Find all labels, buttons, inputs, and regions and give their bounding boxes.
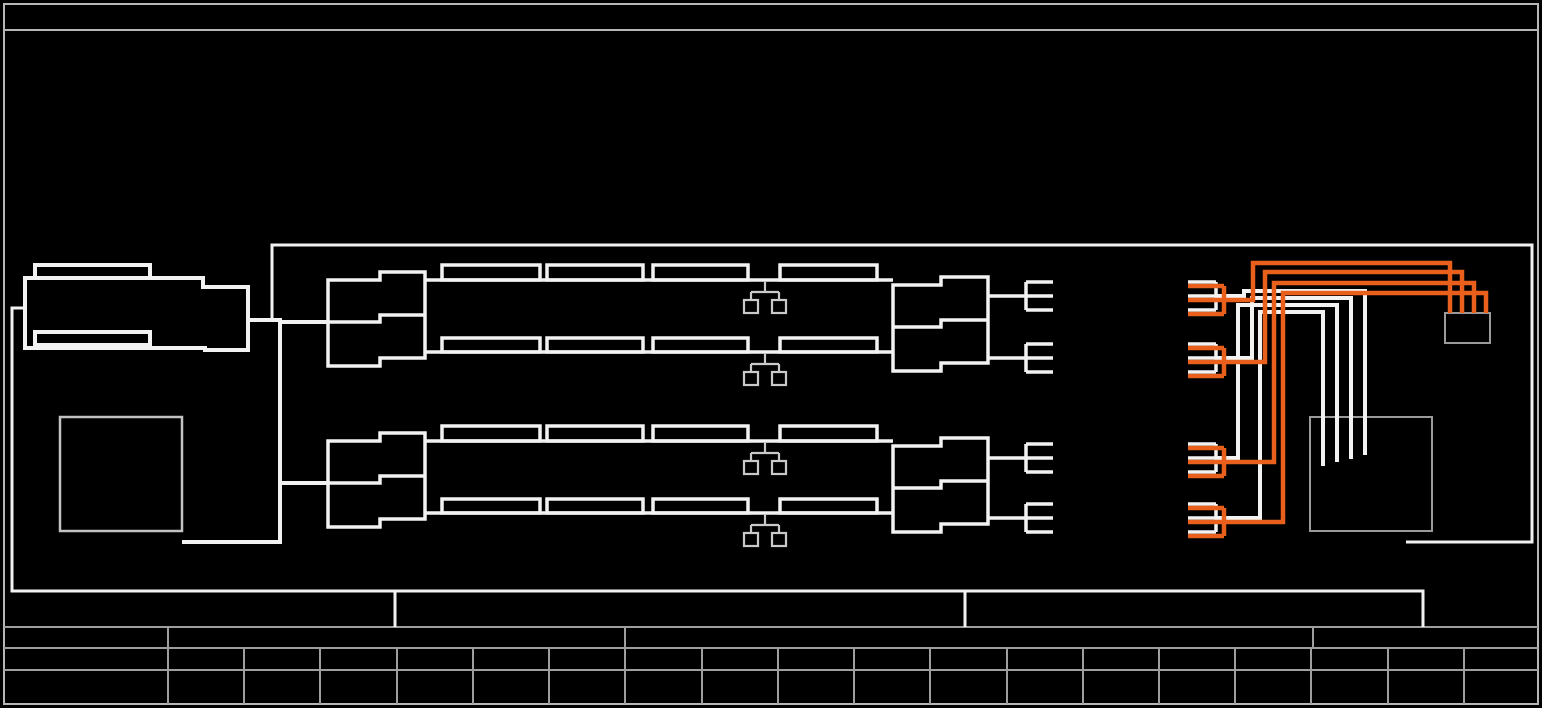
harness-rails xyxy=(425,280,893,352)
left-connector-block xyxy=(328,433,425,527)
fork-connectors xyxy=(988,282,1053,372)
branch-symbol xyxy=(751,514,779,533)
small-junction-box xyxy=(1445,313,1490,343)
sheet-frame xyxy=(4,4,1538,704)
fork-connectors xyxy=(988,444,1053,532)
terminal-square xyxy=(772,300,786,313)
enclosure-bottom-outline xyxy=(12,308,1423,627)
left-component-box xyxy=(60,417,182,531)
sheet-border xyxy=(4,4,1538,704)
white-wire xyxy=(1216,305,1337,462)
right-connector-block xyxy=(893,438,988,532)
branch-symbol xyxy=(751,442,779,461)
harness-lower xyxy=(328,426,1053,532)
terminal-square xyxy=(772,372,786,385)
terminal-square xyxy=(772,461,786,474)
left-connector-block xyxy=(328,272,425,366)
harness-upper xyxy=(328,265,1053,372)
rail-modules xyxy=(442,426,877,513)
terminal-square xyxy=(744,372,758,385)
right-connector-groups-white xyxy=(1188,282,1216,532)
large-junction-box xyxy=(1310,417,1432,531)
terminal-square xyxy=(744,533,758,546)
table-top-row-dividers xyxy=(168,627,1313,648)
terminal-square xyxy=(772,533,786,546)
schematic-sheet xyxy=(0,0,1542,708)
battery-connector xyxy=(25,265,328,542)
rail-modules xyxy=(442,265,877,352)
title-block-table xyxy=(4,627,1538,704)
table-row-lines xyxy=(4,627,1538,670)
right-connector-block xyxy=(893,277,988,371)
harness-rails xyxy=(425,441,893,513)
feed-bus xyxy=(182,320,328,542)
white-wire xyxy=(1216,312,1323,518)
branch-symbol xyxy=(751,281,779,300)
battery-body xyxy=(25,278,248,350)
battery-bottom-tab xyxy=(35,332,150,345)
white-wire-routes xyxy=(1216,291,1365,518)
terminal-square xyxy=(744,300,758,313)
schematic-canvas xyxy=(0,0,1542,708)
table-grid-dividers xyxy=(168,648,1464,704)
left-component xyxy=(60,417,182,531)
branch-symbol xyxy=(751,353,779,372)
terminal-square xyxy=(744,461,758,474)
